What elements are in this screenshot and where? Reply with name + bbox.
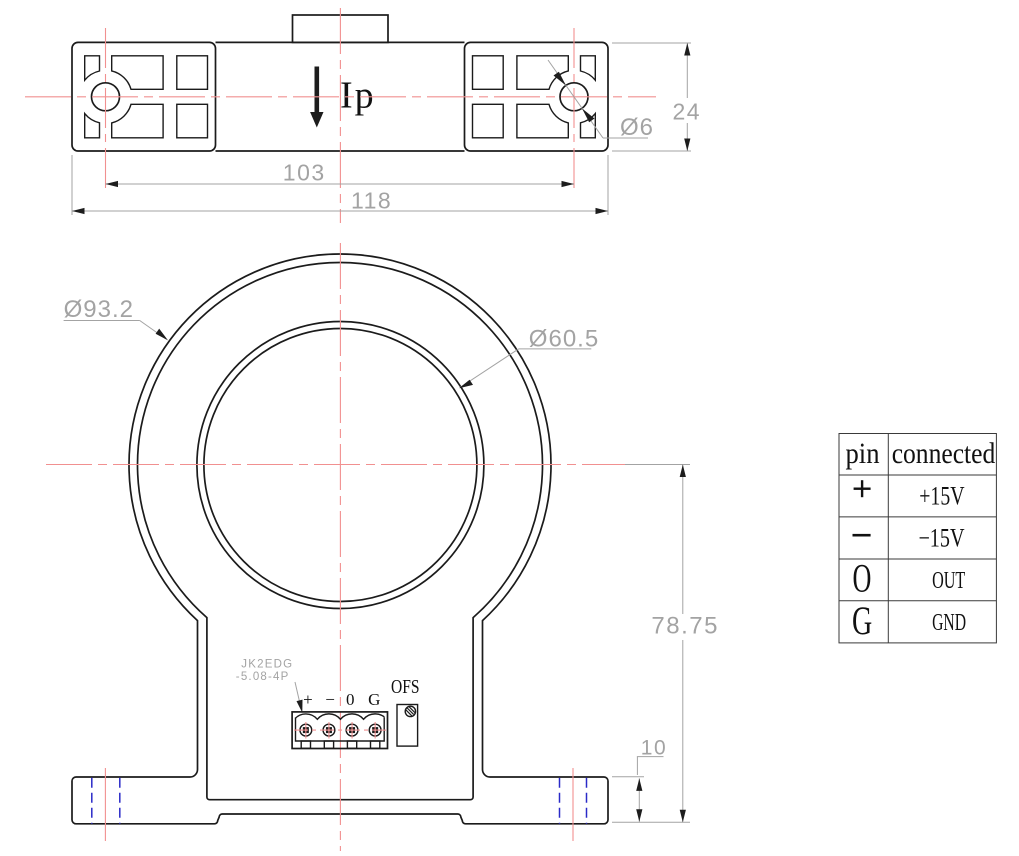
svg-text:OFS: OFS — [391, 676, 420, 698]
svg-text:pin: pin — [846, 437, 880, 470]
svg-text:JK2EDG: JK2EDG — [241, 659, 293, 671]
svg-text:Ip: Ip — [340, 75, 376, 117]
svg-text:Ø93.2: Ø93.2 — [64, 296, 134, 323]
svg-text:-5.08-4P: -5.08-4P — [236, 671, 290, 683]
svg-text:118: 118 — [351, 188, 392, 214]
svg-text:G: G — [852, 599, 872, 643]
svg-text:connected: connected — [892, 437, 996, 470]
svg-text:0: 0 — [346, 690, 355, 709]
svg-text:Ø6: Ø6 — [620, 114, 654, 141]
svg-text:+: + — [303, 690, 313, 709]
svg-text:G: G — [368, 690, 380, 709]
svg-text:24: 24 — [673, 98, 702, 124]
svg-text:10: 10 — [641, 737, 667, 760]
svg-text:103: 103 — [283, 160, 326, 186]
svg-text:O: O — [852, 557, 871, 601]
svg-text:OUT: OUT — [932, 567, 965, 594]
svg-text:−15V: −15V — [918, 524, 964, 553]
svg-text:78.75: 78.75 — [651, 613, 719, 640]
svg-text:+15V: +15V — [919, 482, 964, 511]
svg-text:GND: GND — [932, 609, 966, 636]
svg-text:−: − — [325, 690, 335, 709]
